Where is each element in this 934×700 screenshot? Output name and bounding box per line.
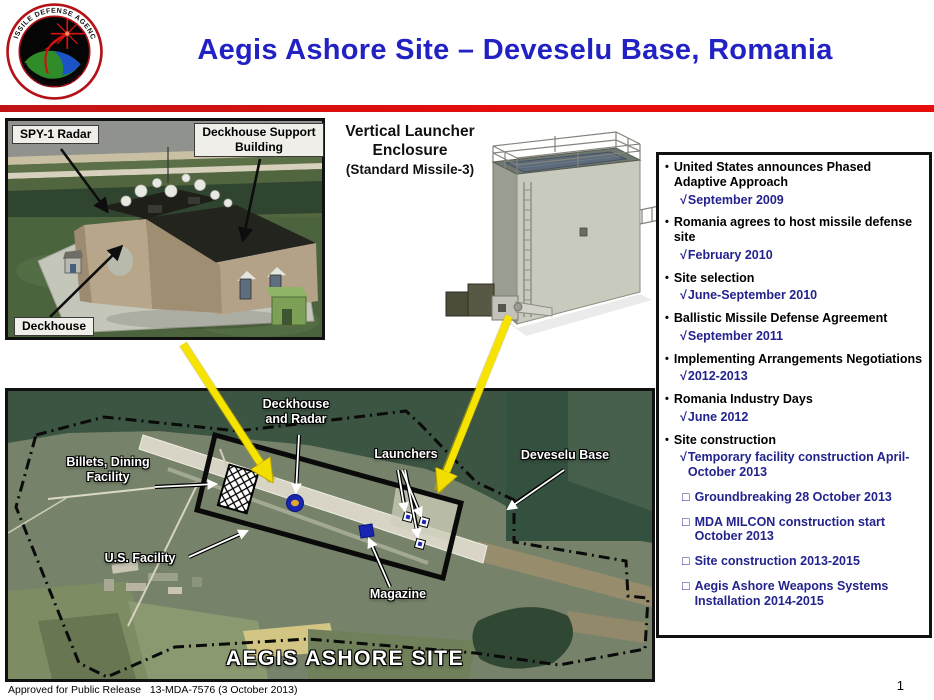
launcher-3d-render xyxy=(440,112,665,352)
header-divider xyxy=(0,105,934,112)
timeline-milestone: √2012-2013 xyxy=(680,369,924,384)
map-label-us-facility: U.S. Facility xyxy=(84,551,196,566)
spy1-radar-label: SPY-1 Radar xyxy=(12,125,99,144)
magazine-marker xyxy=(359,524,374,538)
map-label-site-title: AEGIS ASHORE SITE xyxy=(145,646,545,671)
timeline-milestone: □Groundbreaking 28 October 2013 xyxy=(682,490,924,505)
deckhouse-figure: SPY-1 Radar Deckhouse Support Building D… xyxy=(5,118,325,340)
map-label-launchers: Launchers xyxy=(358,447,454,462)
map-label-billets: Billets, Dining Facility xyxy=(52,455,164,485)
timeline-item: •Romania agrees to host missile defense … xyxy=(665,215,924,245)
timeline-item: •Ballistic Missile Defense Agreement xyxy=(665,311,924,326)
slide-title: Aegis Ashore Site – Deveselu Base, Roman… xyxy=(104,34,926,67)
timeline-item: •Implementing Arrangements Negotiations xyxy=(665,352,924,367)
mda-logo: MISSILE DEFENSE AGENCY DEPARTMENT OF DEF… xyxy=(6,3,103,100)
timeline-milestone: √September 2011 xyxy=(680,329,924,344)
timeline-milestone: □Aegis Ashore Weapons Systems Installati… xyxy=(682,579,924,609)
timeline-milestone: □MDA MILCON construction start October 2… xyxy=(682,515,924,545)
site-map: Deckhouse and Radar Billets, Dining Faci… xyxy=(5,388,655,682)
briefing-slide: MISSILE DEFENSE AGENCY DEPARTMENT OF DEF… xyxy=(0,0,934,700)
deckhouse-support-label: Deckhouse Support Building xyxy=(194,123,324,157)
timeline-item: •Site construction xyxy=(665,433,924,448)
timeline-milestone: √February 2010 xyxy=(680,248,924,263)
timeline-milestone: √September 2009 xyxy=(680,193,924,208)
timeline-item: •United States announces Phased Adaptive… xyxy=(665,160,924,190)
timeline-panel: •United States announces Phased Adaptive… xyxy=(656,152,932,638)
timeline-milestone: √June-September 2010 xyxy=(680,288,924,303)
satellite-map-render xyxy=(8,391,652,679)
page-number: 1 xyxy=(897,678,904,693)
map-label-deveselu-base: Deveselu Base xyxy=(500,448,630,463)
deckhouse-label: Deckhouse xyxy=(14,317,94,336)
timeline-item: •Romania Industry Days xyxy=(665,392,924,407)
map-label-magazine: Magazine xyxy=(352,587,444,602)
timeline-list: •United States announces Phased Adaptive… xyxy=(665,160,924,608)
timeline-item: •Site selection xyxy=(665,271,924,286)
timeline-milestone: √Temporary facility construction April-O… xyxy=(680,450,924,480)
deckhouse-marker xyxy=(287,495,304,512)
map-label-deckhouse-radar: Deckhouse and Radar xyxy=(246,397,346,427)
approval-notice: Approved for Public Release 13-MDA-7576 … xyxy=(8,684,297,696)
timeline-milestone: □Site construction 2013-2015 xyxy=(682,554,924,569)
timeline-milestone: √June 2012 xyxy=(680,410,924,425)
